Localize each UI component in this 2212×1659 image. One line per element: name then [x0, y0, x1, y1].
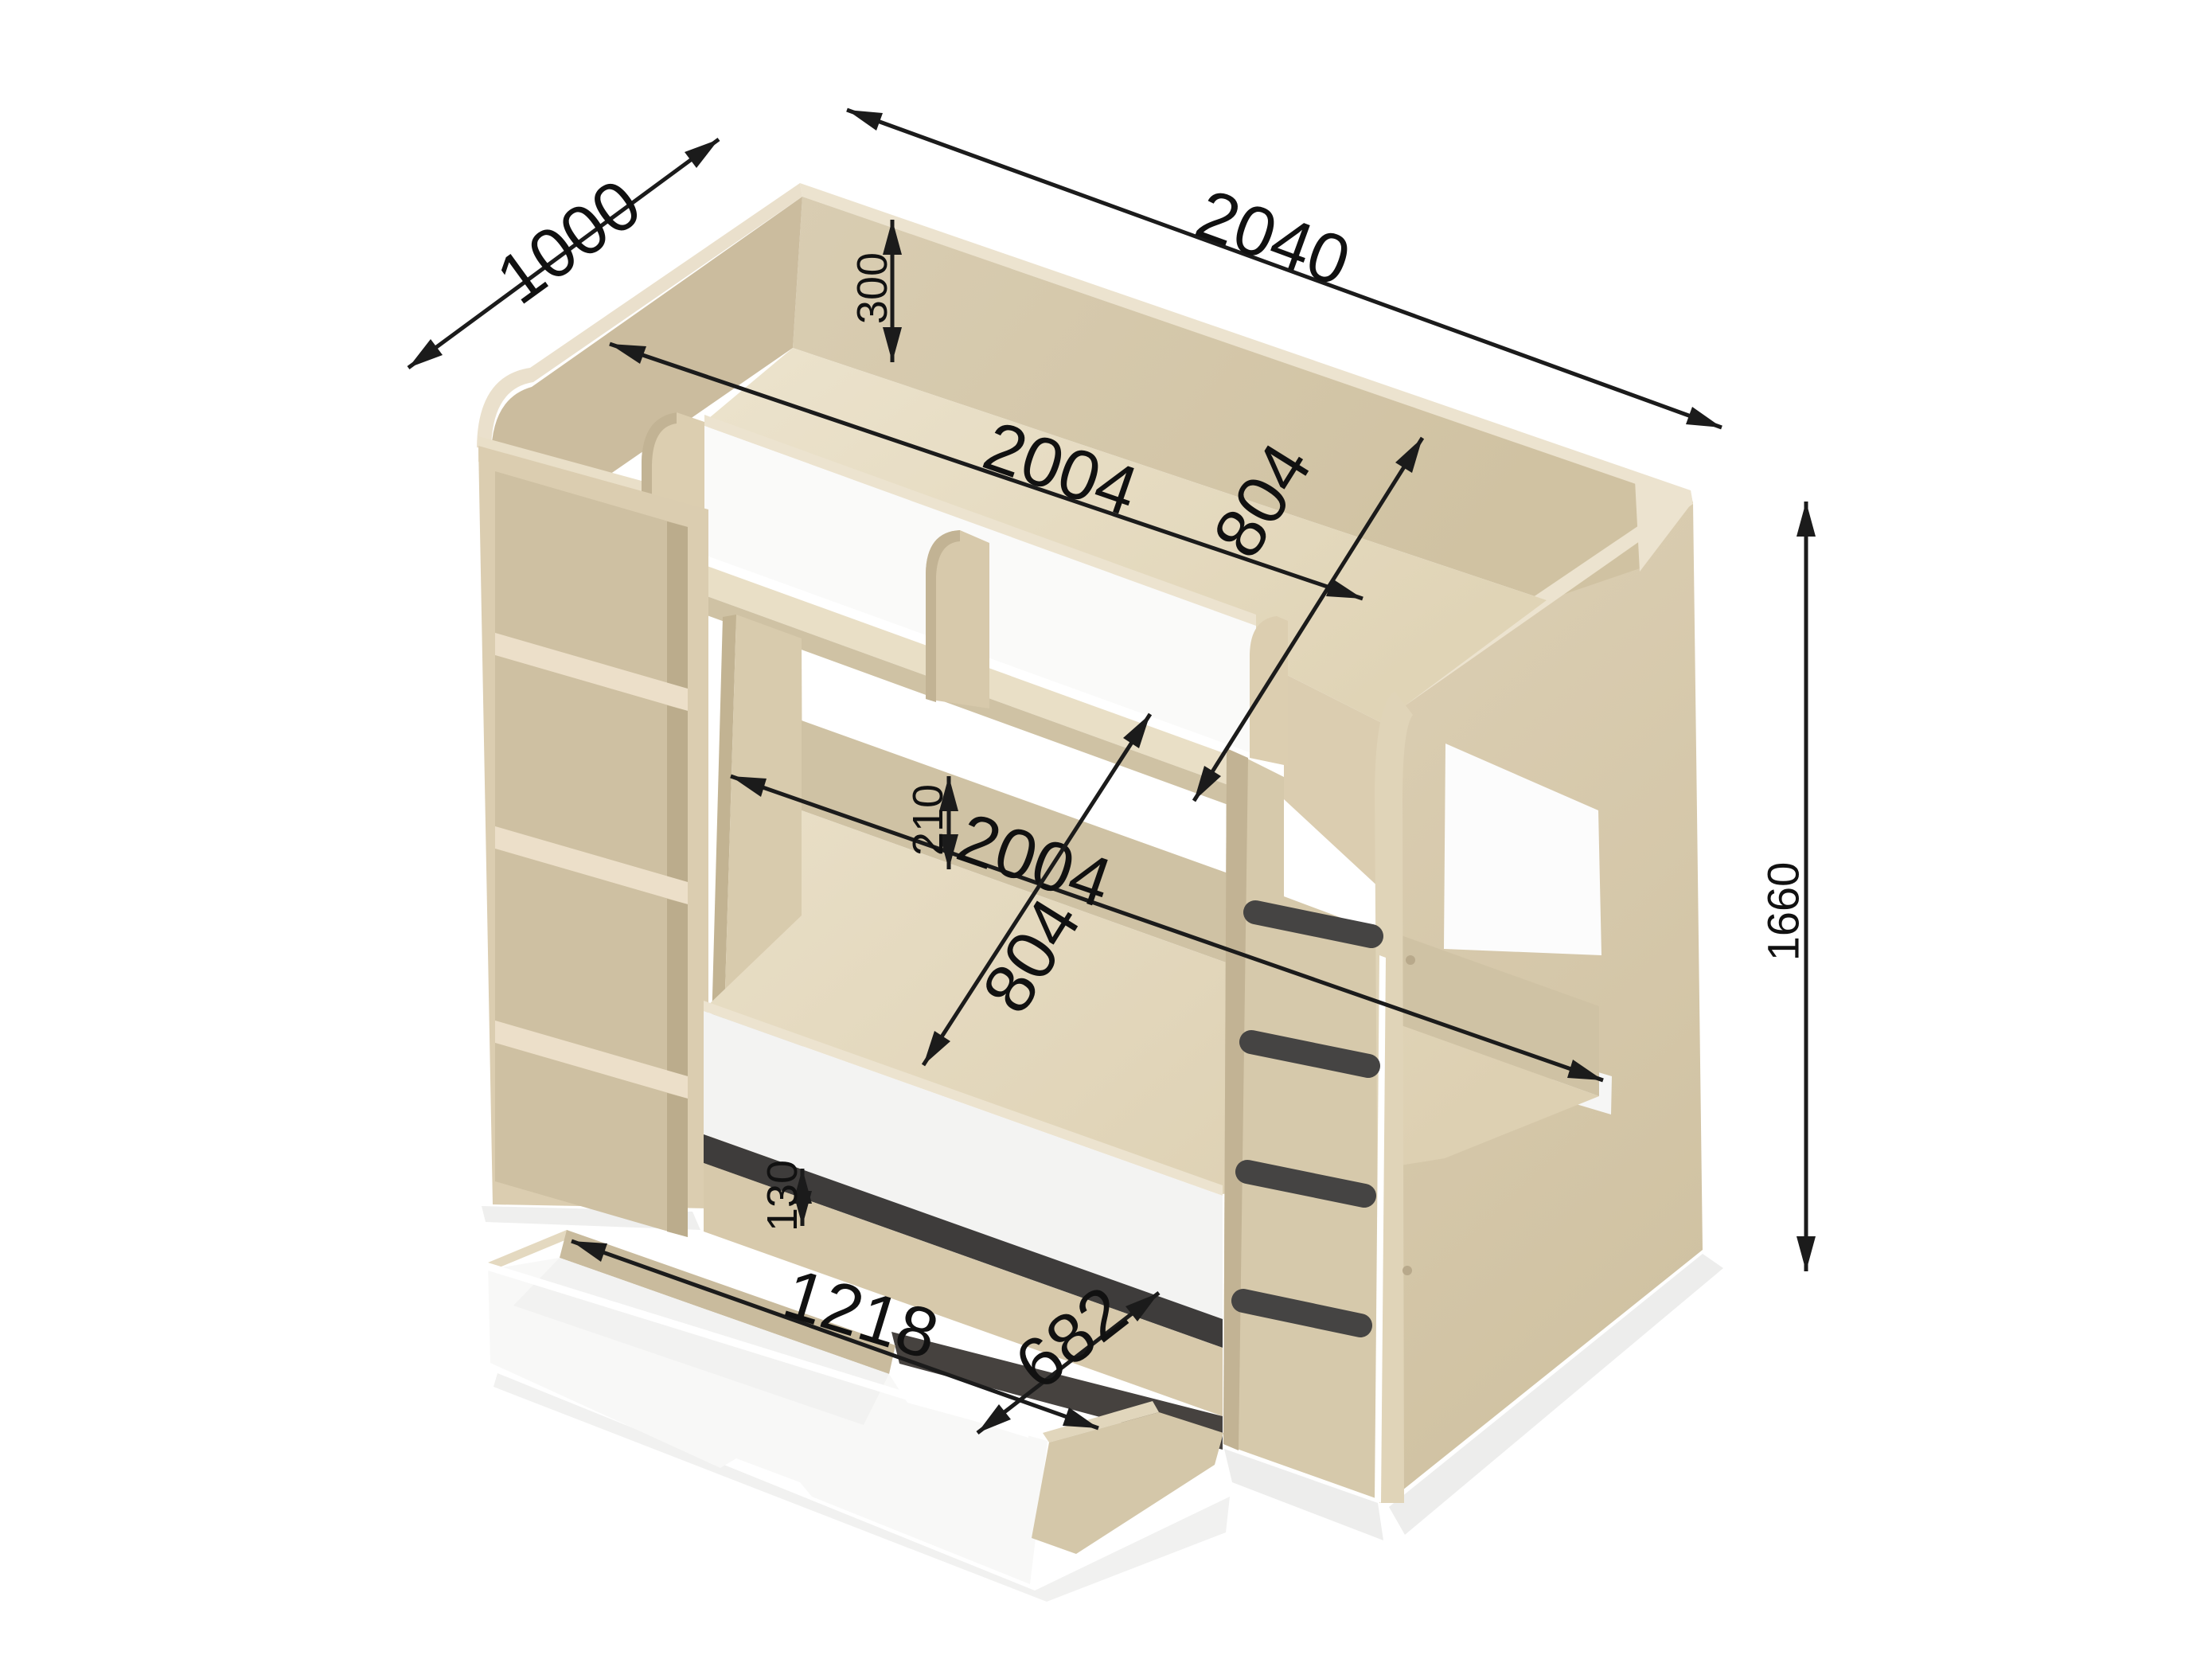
svg-text:130: 130: [759, 1160, 806, 1232]
svg-text:300: 300: [849, 252, 896, 324]
svg-text:1660: 1660: [1758, 862, 1808, 962]
svg-text:210: 210: [904, 784, 952, 856]
